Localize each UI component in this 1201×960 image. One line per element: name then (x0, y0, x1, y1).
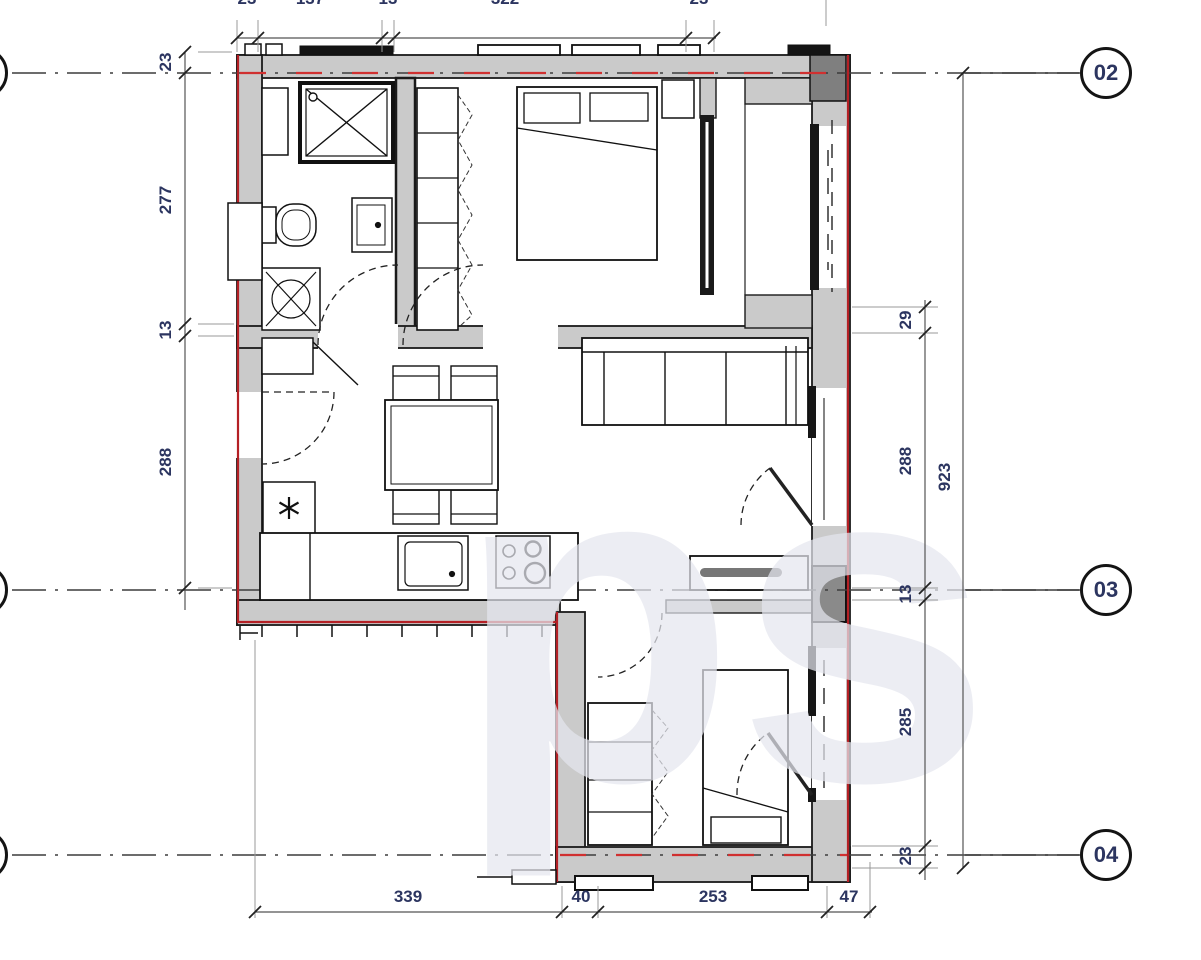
grid-marker-04: 04 (1080, 829, 1132, 881)
pillow (590, 93, 648, 121)
dim-top-322: 322 (483, 0, 527, 10)
wall-window-stub (700, 78, 716, 118)
hanging-rail-zigzag (458, 95, 472, 328)
dim-bottom-339: 339 (386, 886, 430, 908)
column-top-right (810, 55, 846, 101)
washing-machine (262, 268, 320, 330)
wall-bathroom-divider (396, 78, 415, 330)
dim-bottom-47: 47 (827, 886, 871, 908)
dim-right-285: 285 (895, 700, 917, 744)
grid-marker-02-label: 02 (1094, 60, 1118, 86)
dim-top-23a: 23 (225, 0, 269, 10)
dim-left-277: 277 (155, 178, 177, 222)
dim-left-13: 13 (155, 308, 177, 352)
grid-marker-02: 02 (1080, 47, 1132, 99)
dim-top-13: 13 (366, 0, 410, 10)
floor-plan-screenshot: ps (0, 0, 1201, 960)
dim-bottom-253: 253 (691, 886, 735, 908)
fridge (263, 482, 315, 534)
window-frame (810, 124, 819, 290)
entry-door-swing (262, 392, 334, 464)
shower (300, 83, 393, 162)
dim-right-total-923: 923 (934, 455, 956, 499)
dim-right-29: 29 (895, 298, 917, 342)
window-bath (300, 46, 393, 55)
window-bedroom (478, 45, 560, 55)
washbasin (352, 198, 392, 252)
dim-top-137: 137 (288, 0, 332, 10)
dim-bottom-40: 40 (559, 886, 603, 908)
dim-top-23b: 23 (677, 0, 721, 10)
shelf-wardrobe (417, 88, 472, 330)
floor-plan-drawing: ps (0, 0, 1201, 960)
bathroom (262, 83, 393, 330)
toilet (262, 204, 316, 246)
chair (393, 490, 439, 524)
double-bed (517, 87, 657, 260)
nightstand (662, 80, 694, 118)
dim-left-288: 288 (155, 440, 177, 484)
grid-marker-03: 03 (1080, 564, 1132, 616)
wall-loggia-stub-bottom (745, 295, 812, 328)
grid-marker-04-label: 04 (1094, 842, 1118, 868)
dim-right-13: 13 (895, 572, 917, 616)
dim-right-23: 23 (895, 834, 917, 878)
duct-shaft (262, 88, 288, 155)
grid-marker-03-label: 03 (1094, 577, 1118, 603)
chair (393, 366, 439, 400)
duct-shaft-left (228, 203, 262, 280)
dim-right-288: 288 (895, 439, 917, 483)
dim-left-23: 23 (155, 40, 177, 84)
wall-loggia-stub-top (745, 78, 812, 104)
bedroom-top (417, 80, 694, 330)
wall-top (237, 55, 850, 78)
pillow (524, 93, 580, 123)
window-bottom-2 (752, 876, 808, 890)
